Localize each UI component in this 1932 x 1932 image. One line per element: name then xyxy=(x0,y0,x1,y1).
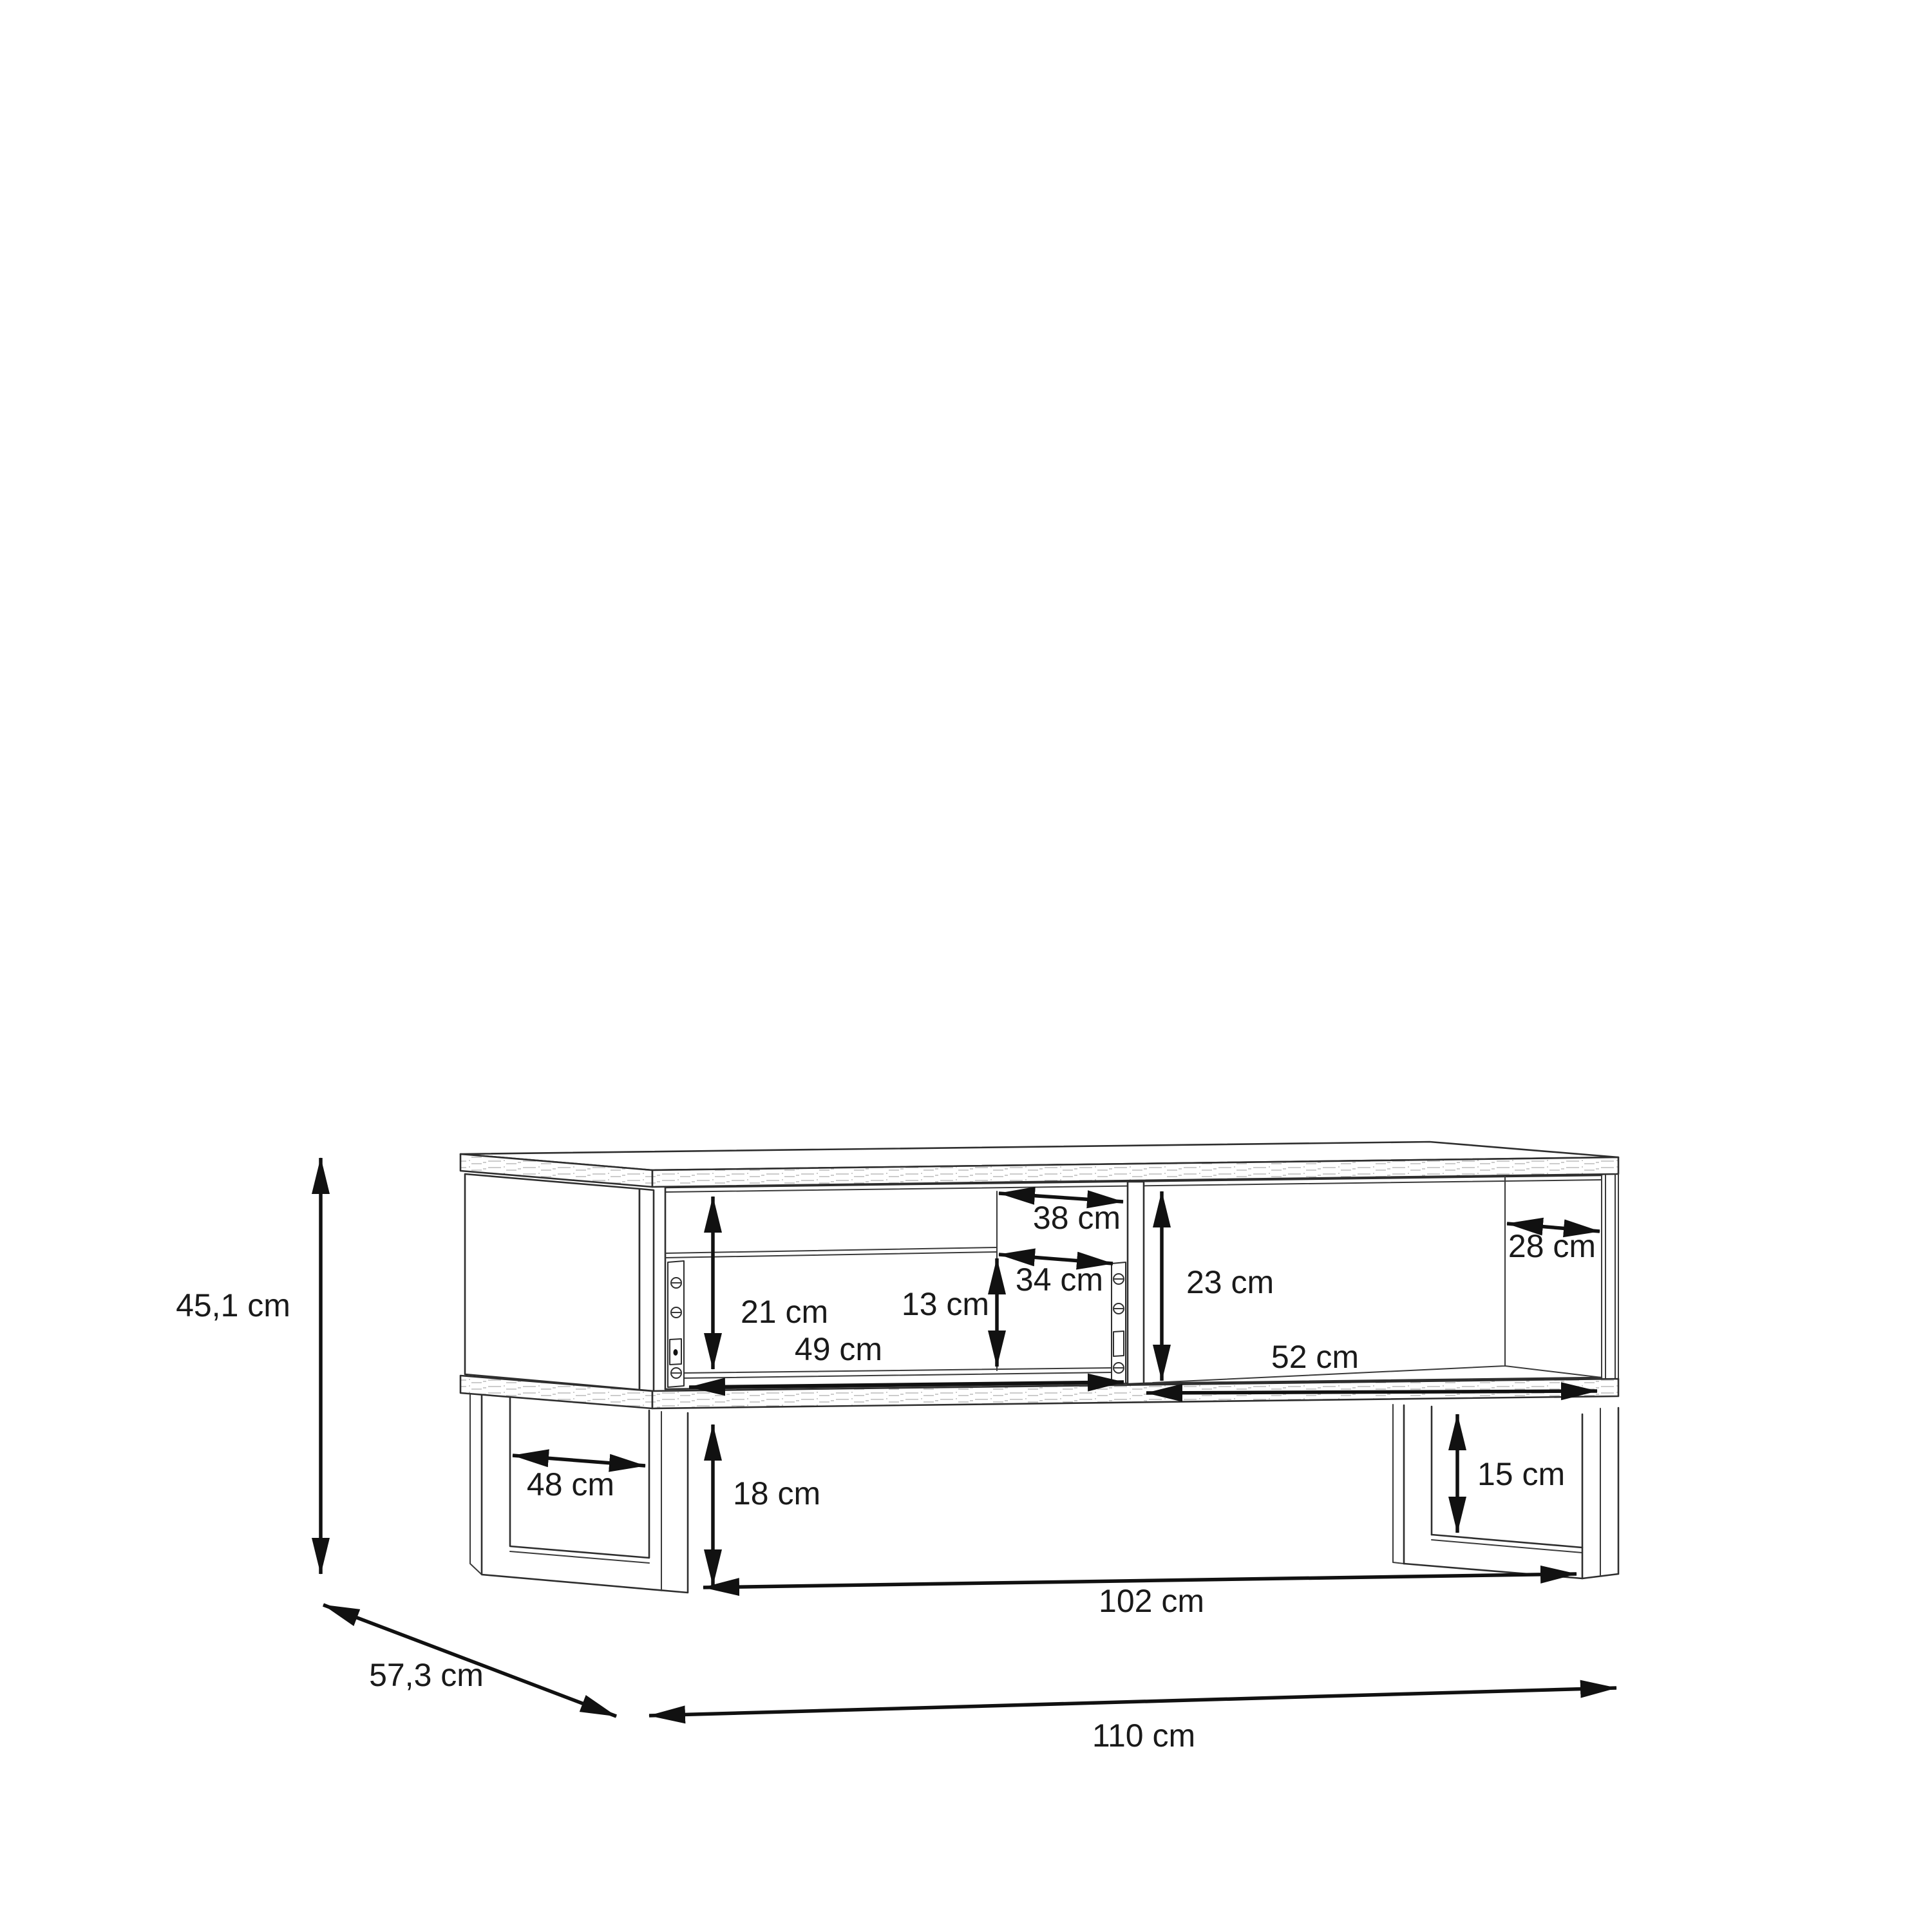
dim-label-overall-width: 110 cm xyxy=(1092,1718,1195,1754)
dim-drawer-width: 49 cm xyxy=(689,1331,1124,1387)
right-inner-wall-edges xyxy=(1602,1175,1605,1386)
dim-label-overall-height: 45,1 cm xyxy=(176,1287,290,1323)
dim-label-right-compartment-depth: 28 cm xyxy=(1508,1228,1596,1264)
dim-leg-inner-height: 15 cm xyxy=(1457,1414,1565,1533)
right-leg-back-post xyxy=(1404,1405,1432,1564)
dim-label-leg-inner-height: 15 cm xyxy=(1477,1456,1565,1492)
left-leg-runner-edge xyxy=(510,1551,649,1563)
rail-divider-latch xyxy=(1113,1331,1124,1356)
middle-divider xyxy=(1128,1182,1144,1384)
drawer-rail-left xyxy=(668,1261,684,1387)
dim-label-overall-depth: 57,3 cm xyxy=(369,1657,484,1693)
dim-label-top-opening-depth: 38 cm xyxy=(1033,1200,1121,1236)
dim-right-compartment-height: 23 cm xyxy=(1162,1191,1274,1381)
right-panel-front-edge xyxy=(1615,1174,1618,1387)
dim-right-compartment-depth: 28 cm xyxy=(1507,1224,1600,1264)
right-leg-back-post-side xyxy=(1393,1405,1404,1564)
dim-base-width: 102 cm xyxy=(703,1574,1577,1619)
dim-drawer-inner-height: 13 cm xyxy=(902,1258,997,1367)
left-leg-side-edge xyxy=(470,1394,482,1575)
dim-label-drawer-width: 49 cm xyxy=(795,1331,882,1367)
drawer-back-top-edge xyxy=(665,1247,997,1258)
furniture-dimension-diagram: 45,1 cm 57,3 cm 110 cm 102 cm 48 cm 18 c… xyxy=(0,0,1932,1932)
dim-label-underbody-clearance: 18 cm xyxy=(733,1475,820,1511)
dim-label-right-compartment-width: 52 cm xyxy=(1271,1339,1359,1375)
dim-top-opening-depth: 38 cm xyxy=(999,1193,1123,1236)
drawer-rail-divider xyxy=(1112,1262,1126,1385)
right-leg-runner xyxy=(1404,1535,1582,1578)
dim-label-base-width: 102 cm xyxy=(1099,1583,1204,1619)
dim-drawer-opening-depth: 34 cm xyxy=(999,1255,1113,1298)
dim-overall-depth: 57,3 cm xyxy=(323,1605,616,1716)
page: 45,1 cm 57,3 cm 110 cm 102 cm 48 cm 18 c… xyxy=(0,0,1932,1932)
dim-underbody-clearance: 18 cm xyxy=(713,1425,820,1586)
drawer-bottom-edges xyxy=(681,1368,1113,1378)
dim-overall-width: 110 cm xyxy=(649,1688,1616,1754)
dim-label-drawer-inner-height: 13 cm xyxy=(902,1286,989,1322)
left-side-panel xyxy=(465,1174,654,1391)
left-panel-front-edge xyxy=(639,1189,654,1391)
left-panel-outer-face xyxy=(465,1174,639,1390)
dim-label-right-compartment-height: 23 cm xyxy=(1186,1264,1274,1300)
rail-left-latch-pin xyxy=(674,1349,678,1356)
dim-label-drawer-opening-depth: 34 cm xyxy=(1016,1262,1103,1298)
dimensions: 45,1 cm 57,3 cm 110 cm 102 cm 48 cm 18 c… xyxy=(176,1158,1616,1754)
dim-leg-opening: 48 cm xyxy=(513,1455,645,1502)
dim-label-leg-opening: 48 cm xyxy=(527,1466,614,1502)
dim-label-left-compartment-height: 21 cm xyxy=(741,1294,828,1330)
dim-overall-height: 45,1 cm xyxy=(176,1158,321,1574)
top-panel xyxy=(460,1142,1618,1187)
